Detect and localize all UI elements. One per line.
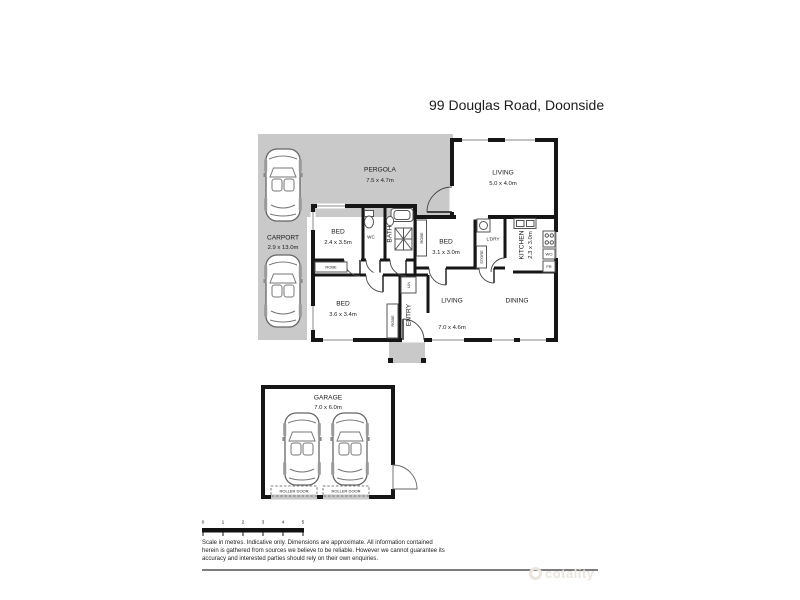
svg-text:5: 5 bbox=[302, 520, 305, 526]
bed-front-label: BED bbox=[331, 229, 345, 236]
laundry-tub-icon bbox=[477, 219, 490, 232]
bed-middle-label: BED bbox=[439, 239, 453, 246]
garage-block bbox=[263, 387, 417, 500]
robe-label: ROBE bbox=[419, 232, 424, 244]
garage-label: GARAGE bbox=[314, 395, 343, 402]
bath-label: BATH bbox=[387, 225, 394, 242]
svg-text:2: 2 bbox=[242, 520, 245, 526]
watermark-logo-icon bbox=[529, 567, 542, 580]
bathtub-icon bbox=[391, 209, 413, 222]
svg-text:0: 0 bbox=[202, 520, 205, 526]
floorplan-page: 99 Douglas Road, Doonside bbox=[0, 0, 800, 600]
car-icon bbox=[282, 413, 321, 485]
car-icon bbox=[330, 413, 369, 485]
living-upper-label: LIVING bbox=[492, 170, 514, 177]
roller-door-label: ROLLER DOOR bbox=[279, 489, 308, 494]
disclaimer-text: Scale in metres. Indicative only. Dimens… bbox=[202, 540, 512, 563]
car-icon bbox=[263, 149, 302, 221]
store-label: STORE bbox=[479, 250, 484, 264]
car-icon bbox=[263, 255, 302, 327]
bed-middle-dims: 3.1 x 3.0m bbox=[432, 250, 460, 256]
svg-text:4: 4 bbox=[282, 520, 285, 526]
roller-door-label: ROLLER DOOR bbox=[331, 489, 360, 494]
carport-dims: 2.9 x 13.0m bbox=[268, 245, 299, 251]
fridge-label: FR bbox=[546, 264, 551, 269]
scale-bar-rule bbox=[202, 528, 304, 533]
floorplan-drawing: PERGOLA 7.5 x 4.7m CARPORT 2.9 x 13.0m L… bbox=[0, 0, 800, 600]
carport-label: CARPORT bbox=[267, 235, 299, 242]
linen-label: LIN bbox=[406, 282, 411, 288]
kitchen-dims: 2.3 x 3.0m bbox=[528, 231, 534, 259]
bed-rear-label: BED bbox=[336, 301, 350, 308]
robe-label: ROBE bbox=[325, 265, 337, 270]
living-main-dims: 7.0 x 4.6m bbox=[438, 325, 466, 331]
laundry-label: L'DRY bbox=[486, 237, 499, 242]
garage-room bbox=[263, 387, 393, 497]
scale-bar: 0 1 2 3 4 5 bbox=[202, 520, 305, 537]
shower-icon bbox=[395, 228, 412, 250]
robe-label: ROBE bbox=[390, 315, 395, 327]
garage-dims: 7.0 x 6.0m bbox=[314, 405, 342, 411]
kitchen-label: KITCHEN bbox=[519, 230, 526, 259]
bed-front-dims: 2.4 x 3.5m bbox=[324, 240, 352, 246]
cooktop-icon bbox=[543, 231, 555, 247]
living-upper-room bbox=[452, 140, 556, 217]
svg-text:3: 3 bbox=[262, 520, 265, 526]
living-main-label: LIVING bbox=[441, 298, 463, 305]
wall-oven-label: WO bbox=[546, 252, 553, 257]
garage-side-door bbox=[393, 465, 417, 489]
svg-text:1: 1 bbox=[222, 520, 225, 526]
entry-label: ENTRY bbox=[406, 303, 413, 326]
watermark: cotality bbox=[529, 566, 595, 581]
living-upper-dims: 5.0 x 4.0m bbox=[489, 181, 517, 187]
basin-icon bbox=[386, 216, 393, 225]
dining-label: DINING bbox=[505, 298, 528, 305]
wc-label: WC bbox=[367, 235, 375, 240]
pergola-dims: 7.5 x 4.7m bbox=[366, 178, 394, 184]
bed-rear-dims: 3.6 x 3.4m bbox=[329, 312, 357, 318]
pergola-label: PERGOLA bbox=[364, 167, 396, 174]
toilet-icon bbox=[365, 211, 374, 229]
kitchen-sink-icon bbox=[514, 219, 536, 229]
watermark-text: cotality bbox=[545, 566, 595, 581]
